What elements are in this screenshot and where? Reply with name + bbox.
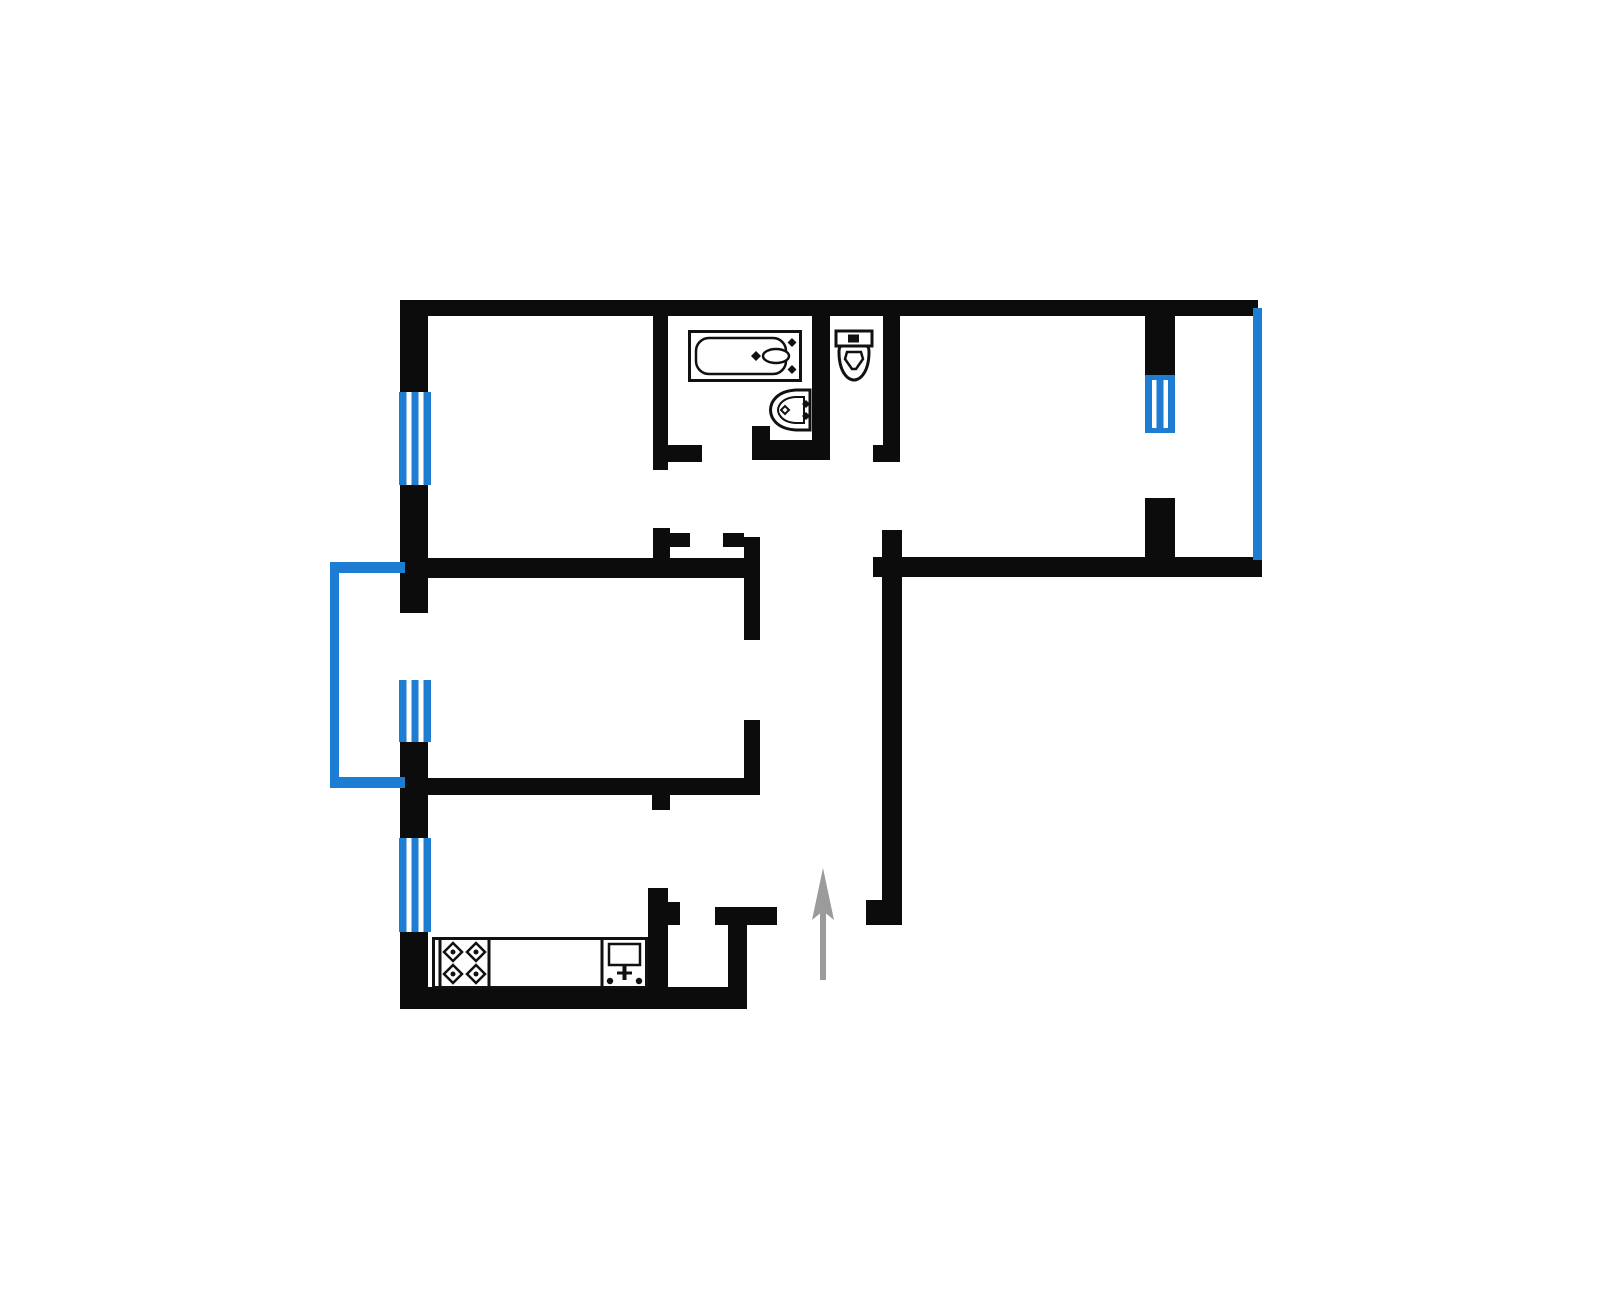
kitchen-south-wall: [400, 987, 747, 1009]
left-balcony-outline-south: [330, 777, 405, 788]
closet-north-wall: [715, 907, 777, 925]
top-wall: [400, 300, 1258, 316]
right-balcony-glazing-line: [1253, 308, 1262, 560]
bathroom-toilet-partition: [812, 315, 830, 460]
left-balcony-outline-north: [330, 562, 405, 573]
toilet-east-wall-foot: [873, 445, 900, 462]
closet-door-jamb: [668, 902, 680, 925]
living-room-balcony-window: [399, 680, 431, 742]
left-wall-top: [400, 300, 428, 392]
bedroom-window: [399, 392, 431, 485]
kitchen-east-wall: [648, 888, 668, 1009]
bedroom-door-jamb-stub: [653, 528, 670, 560]
bathroom-west-wall-foot: [667, 445, 702, 462]
living-room-south-wall: [428, 778, 760, 795]
kitchen-counter-stove-sink-icon: [432, 937, 648, 989]
living-room-east-wall-lower: [744, 720, 760, 795]
bathroom-west-wall: [653, 315, 668, 470]
kitchen-door-jamb: [652, 795, 670, 810]
floor-plan: [0, 0, 1600, 1303]
entrance-arrow-icon: [808, 868, 838, 980]
toilet-icon: [834, 329, 874, 390]
hall-central-wall-foot: [866, 900, 902, 925]
closet-east-wall: [728, 925, 747, 1005]
left-wall-mid-1: [400, 485, 428, 613]
washbasin-icon: [768, 388, 813, 432]
living-room-north-wall: [428, 558, 760, 578]
left-wall-mid-2: [400, 742, 428, 838]
hall-central-wall: [882, 530, 902, 925]
balcony-partition-upper: [1145, 315, 1175, 375]
left-balcony-outline-west: [330, 562, 339, 788]
toilet-east-wall: [883, 315, 900, 462]
bathroom-south-wall: [752, 440, 830, 460]
balcony-partition-lower: [1145, 498, 1175, 559]
kitchen-window: [399, 838, 431, 932]
living-room-east-wall-upper: [744, 537, 760, 640]
bathtub-icon: [688, 330, 802, 382]
bedroom-door-jamb-right: [723, 533, 744, 547]
right-room-balcony-window: [1145, 375, 1175, 433]
bedroom-door-jamb-left: [670, 533, 690, 547]
right-wing-south-wall: [873, 557, 1262, 577]
